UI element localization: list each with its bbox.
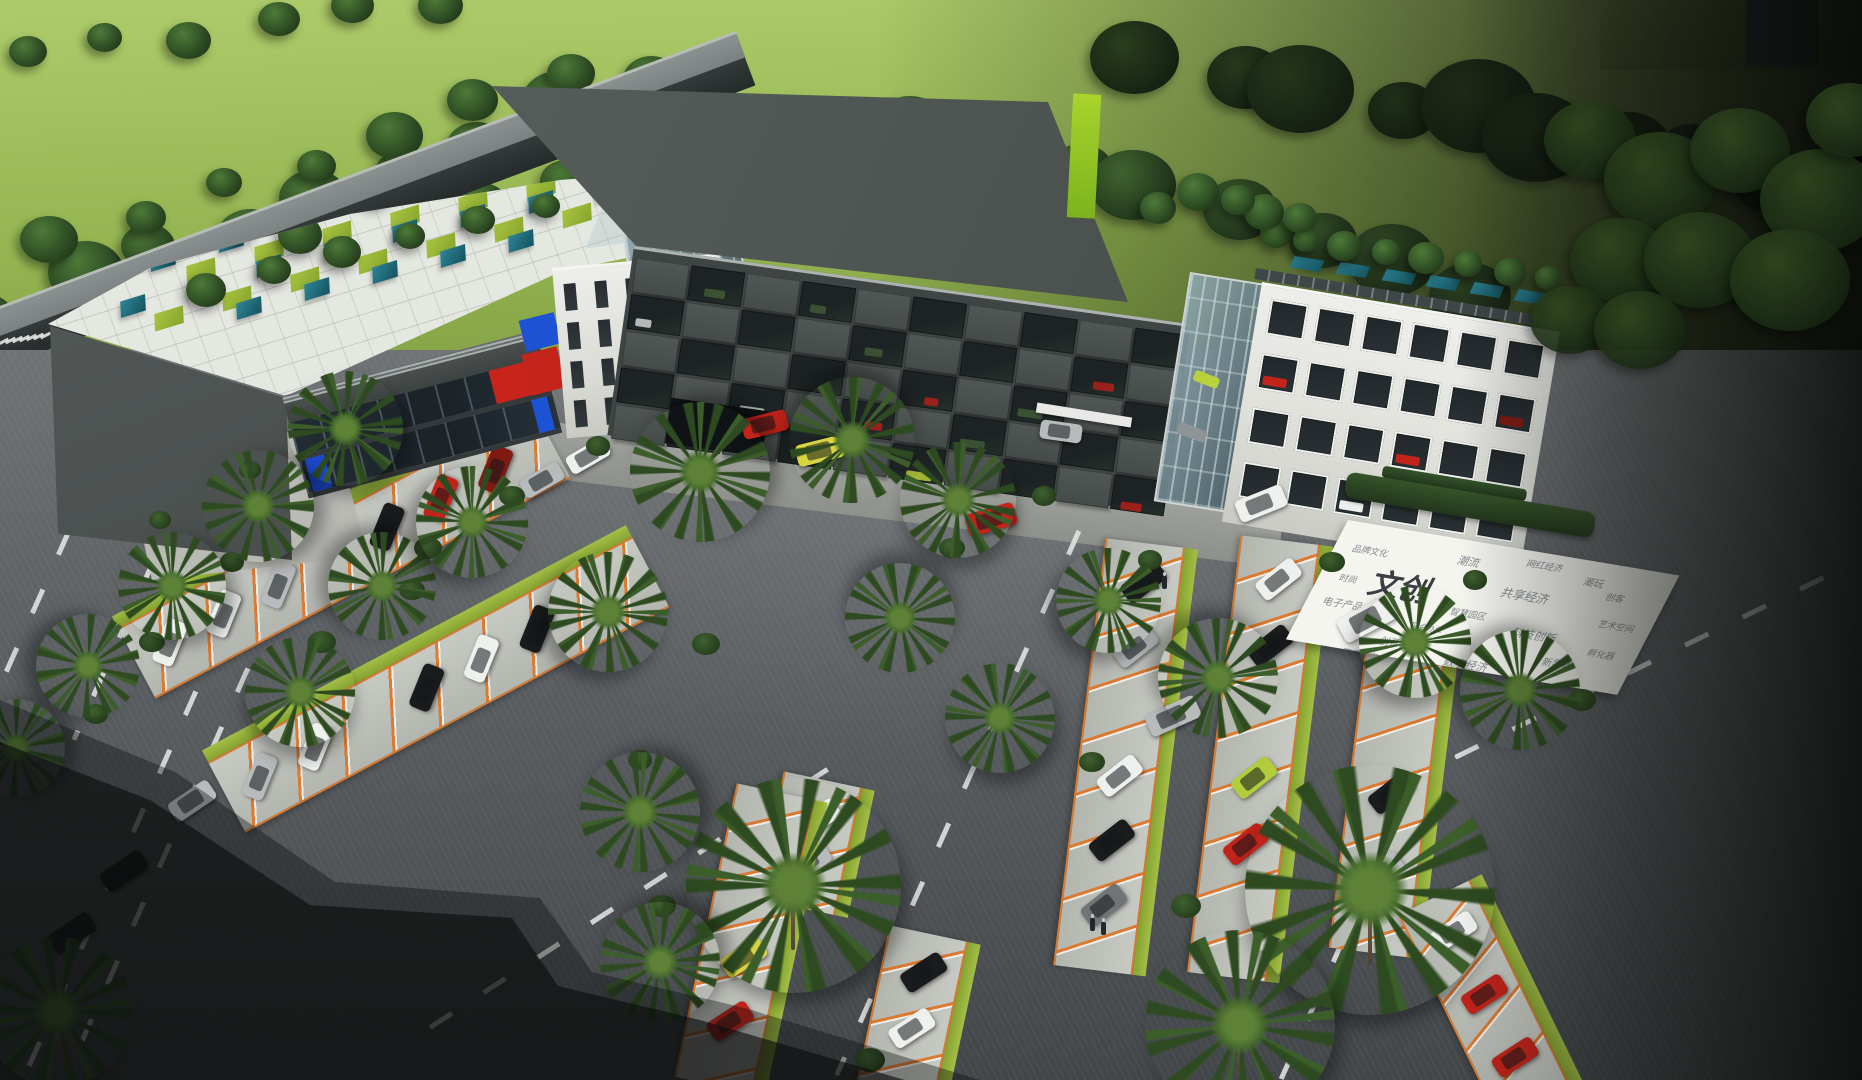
wall-word: 电子产品 [1320, 597, 1364, 613]
garage-panel [944, 451, 1002, 493]
parked-car [705, 999, 756, 1043]
lawn-strip [835, 788, 875, 918]
window [1398, 377, 1441, 419]
car-behind-glass [1176, 421, 1208, 443]
rooftop-tree-icon [1283, 203, 1317, 234]
window [1446, 385, 1489, 427]
garage-window [949, 414, 1007, 456]
parked-car [898, 951, 949, 995]
parked-car [1095, 753, 1145, 799]
parked-car [1366, 770, 1416, 816]
rooftop-tree-icon [1454, 251, 1482, 276]
parked-car [241, 751, 279, 802]
parked-car [1429, 910, 1480, 954]
wall-word: 联合办公 [1409, 622, 1444, 635]
wall-word: 网红经济 [1524, 560, 1564, 574]
wall-headline: 文创 [1363, 570, 1437, 608]
parked-car [463, 633, 501, 684]
window [1286, 469, 1329, 511]
car-in-window [1339, 500, 1364, 513]
garage-window [1060, 430, 1118, 472]
parked-car [1221, 821, 1271, 867]
garage-panel [1004, 422, 1062, 464]
rooftop-tree-icon [1140, 192, 1176, 224]
car-in-window [1395, 454, 1420, 467]
parked-car [1254, 556, 1304, 602]
wall-word: 孵化器 [1585, 650, 1616, 663]
rooftop-canopy [1336, 262, 1371, 278]
parked-car [1087, 817, 1137, 863]
wall-word: 新零售 [1539, 658, 1573, 672]
window [1493, 393, 1536, 435]
parked-car [1490, 1035, 1541, 1079]
parking-row [1053, 538, 1185, 975]
wall-word: 科技创新 [1510, 627, 1559, 645]
window [1313, 307, 1356, 349]
lawn-strip [753, 800, 828, 1080]
garage-window [888, 443, 946, 485]
rooftop-canopy [1426, 275, 1461, 291]
parked-car [205, 588, 243, 639]
wall-word: 潮玩 [1581, 578, 1606, 591]
rooftop-tree-icon [1177, 173, 1219, 211]
lawn-strip [1133, 548, 1198, 976]
parked-car [518, 603, 556, 654]
parking-row [674, 783, 815, 1080]
wall-word: 智慧园区 [1448, 608, 1488, 622]
rooftop-tree-icon [1327, 231, 1361, 262]
garage-panel [833, 435, 891, 477]
rooftop-tree-icon [1372, 239, 1400, 264]
parked-car-glint [959, 439, 985, 450]
rooftop-tree-icon [1494, 258, 1526, 287]
window [1389, 431, 1432, 473]
parked-car [1459, 972, 1510, 1016]
window [1437, 439, 1480, 481]
window [1351, 369, 1394, 411]
parking-row [1398, 880, 1610, 1080]
wall-word: 共享经济 [1498, 587, 1551, 606]
rooftop-canopy [1514, 289, 1549, 305]
garage-panel [611, 404, 669, 446]
window [1256, 353, 1299, 395]
rooftop-tree-icon [1221, 185, 1255, 216]
parked-car [368, 502, 406, 553]
rooftop-canopy [1470, 282, 1505, 298]
right-roof-terrace [0, 0, 1862, 400]
window [1407, 323, 1450, 365]
parking-row [846, 925, 968, 1080]
car-in-window [1499, 415, 1524, 428]
accent-panel [305, 454, 333, 492]
garage-window [999, 459, 1057, 501]
window [1360, 315, 1403, 357]
wall-word: 艺术空间 [1596, 621, 1636, 635]
rooftop-canopy [1290, 256, 1325, 272]
accent-panel [531, 396, 555, 433]
window [1304, 361, 1347, 403]
parked-car [1111, 624, 1161, 670]
parked-car [1246, 623, 1296, 669]
wall-word: 潮流 [1455, 555, 1482, 569]
wall-word: 品牌文化 [1350, 545, 1390, 559]
car-in-window [1262, 376, 1287, 389]
wall-word: 创意设计 [1377, 637, 1421, 653]
parked-car-glint [906, 470, 933, 481]
window [1247, 407, 1290, 449]
window [1484, 447, 1527, 489]
parked-car [407, 662, 445, 713]
wall-word: 创客 [1603, 594, 1625, 605]
parked-car [1229, 755, 1279, 801]
parked-car [151, 617, 189, 668]
garage-window [777, 427, 835, 469]
parked-car [718, 936, 769, 980]
parked-car [1079, 882, 1129, 928]
rooftop-tree-icon [1408, 242, 1444, 274]
parked-car-glint [864, 421, 883, 431]
parked-car [296, 721, 334, 772]
architectural-rendering: 文创 潮流共享经济电子产品科技创新潮玩创意设计数字经济新零售品牌文化智慧园区直播… [0, 0, 1862, 1080]
parked-car [422, 473, 460, 524]
window [1502, 338, 1545, 380]
rooftop-canopy [1382, 269, 1417, 285]
garage-panel [1055, 466, 1113, 508]
rooftop-tree-icon [1535, 266, 1561, 289]
parked-car [1119, 559, 1169, 605]
wall-word: 时尚 [1337, 575, 1359, 586]
parking-row [1187, 535, 1320, 981]
window [1238, 462, 1281, 504]
window [1265, 299, 1308, 341]
window [1295, 415, 1338, 457]
window [574, 400, 588, 428]
parked-car [1356, 850, 1406, 896]
parked-car [887, 1006, 938, 1050]
parked-car-glint [1120, 501, 1142, 512]
garage-panel [893, 406, 951, 448]
garage-window [838, 399, 896, 441]
window [1455, 330, 1498, 372]
window [1342, 423, 1385, 465]
